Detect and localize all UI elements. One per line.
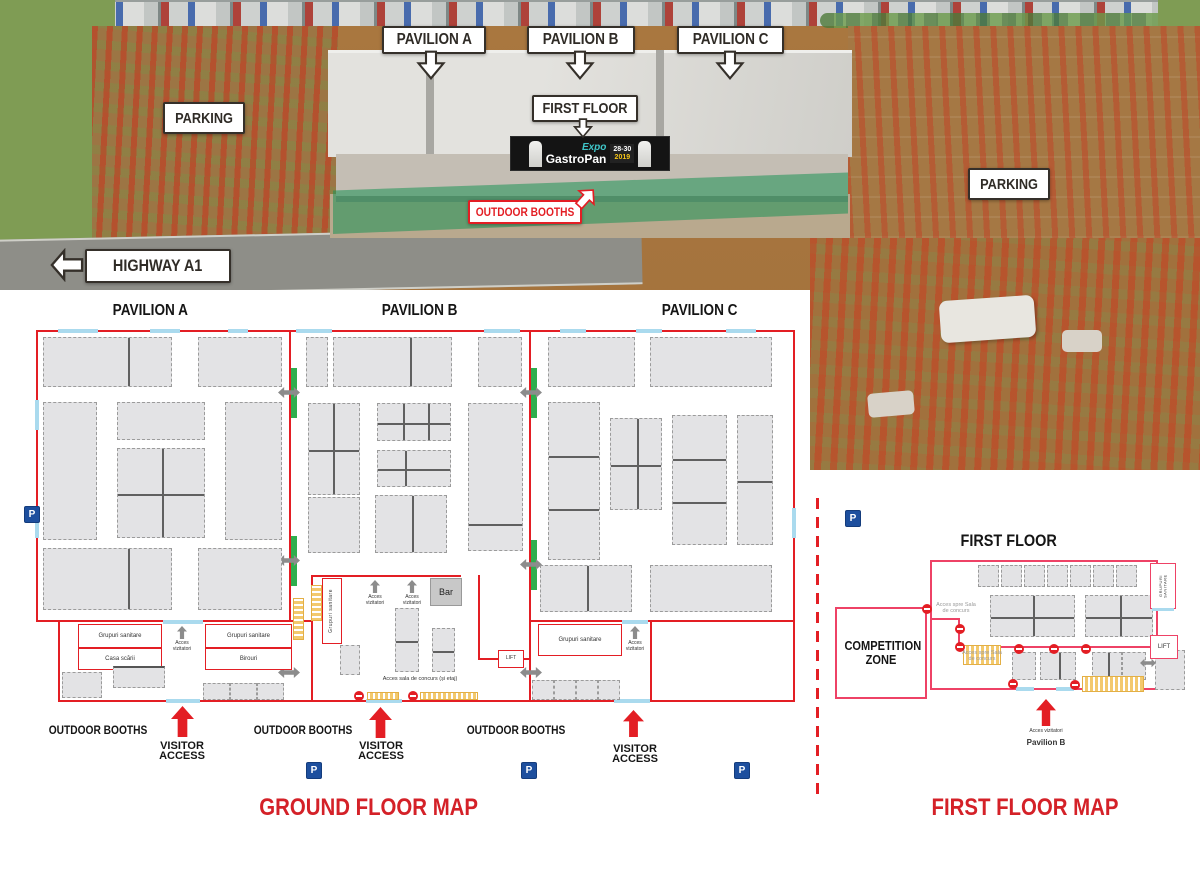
booth [308, 497, 360, 553]
ground-pavilion-b-title: PAVILION B [355, 302, 485, 320]
chef-photo-right [638, 141, 651, 167]
stairs [311, 585, 322, 621]
door-opening [726, 329, 756, 333]
stairs [367, 692, 399, 700]
parking-icon: P [306, 762, 322, 779]
first-floor-title: FIRST FLOOR [929, 531, 1089, 551]
booth [978, 565, 999, 587]
highway-callout: HIGHWAY A1 [85, 249, 231, 283]
parking-symbol: P [29, 509, 36, 520]
booth-divider [1120, 596, 1122, 636]
wall [36, 330, 38, 622]
stairs [1082, 676, 1144, 692]
room-grupuri-sanitare: Grupuri sanitare [205, 624, 292, 648]
parking-icon: P [24, 506, 40, 523]
banner-dates: 28-30 [613, 146, 631, 154]
pavilion-c-callout-text: PAVILION C [693, 31, 769, 49]
parking-icon: P [845, 510, 861, 527]
wall [478, 575, 480, 660]
booth [43, 402, 97, 540]
booth [340, 645, 360, 675]
no-entry-icon [1070, 680, 1080, 690]
booth [377, 450, 451, 487]
booth [610, 418, 662, 510]
acces-spre-sala-label: Acces spre Sala de concurs [934, 602, 978, 615]
first-floor-title-text: FIRST FLOOR [961, 531, 1057, 551]
door-opening [35, 400, 39, 430]
outdoor-booths-text: OUTDOOR BOOTHS [254, 723, 353, 737]
booth [548, 402, 600, 560]
outdoor-booths-text: OUTDOOR BOOTHS [467, 723, 566, 737]
door-opening [484, 329, 520, 333]
booth [203, 683, 230, 700]
booth [1040, 652, 1076, 680]
booth [1093, 565, 1114, 587]
booth-divider [396, 641, 418, 643]
ground-pavilion-c-title: PAVILION C [635, 302, 765, 320]
chef-photo-left [529, 141, 542, 167]
booth [308, 403, 360, 495]
door-opening [150, 329, 180, 333]
booth [1085, 595, 1153, 637]
stairs [293, 598, 304, 640]
no-entry-icon [1081, 644, 1091, 654]
parking-right-callout: PARKING [968, 168, 1050, 200]
booth-divider [162, 449, 164, 537]
room-lift: LIFT [498, 650, 524, 668]
booth [468, 403, 523, 551]
booth [1012, 652, 1036, 680]
exhibit-field-right [848, 26, 1200, 238]
ground-pavilion-b-text: PAVILION B [382, 302, 458, 320]
wall [650, 620, 652, 702]
door-opening [622, 620, 648, 624]
booth [1024, 565, 1045, 587]
acces-vizitatori-text: Acces vizitatori [403, 594, 421, 606]
no-entry-icon [922, 604, 932, 614]
parking-left-text: PARKING [175, 110, 233, 127]
room-label: Birouri [240, 656, 257, 663]
booth-divider [637, 419, 639, 509]
parking-left-callout: PARKING [163, 102, 245, 134]
booth-divider [611, 465, 661, 467]
outdoor-booths-text: OUTDOOR BOOTHS [49, 723, 148, 737]
visitor-access-label: VISITOR ACCESS [612, 744, 658, 765]
booth [1070, 565, 1091, 587]
booth-divider [673, 502, 726, 504]
visitor-access-arrow-icon [1036, 699, 1056, 726]
booth-divider [1033, 596, 1035, 636]
outdoor-booths-label: OUTDOOR BOOTHS [458, 723, 568, 737]
booth [1047, 565, 1068, 587]
first-floor-map-title-text: FIRST FLOOR MAP [931, 794, 1118, 822]
room-label: Grupuri sanitare [98, 633, 141, 640]
down-arrow-icon [416, 50, 446, 80]
booth [432, 628, 455, 672]
tent-small-1 [1062, 330, 1102, 352]
no-entry-icon [408, 691, 418, 701]
booth [198, 337, 282, 387]
wall [529, 620, 795, 622]
room-label: Grupuri sanitare [227, 633, 270, 640]
booth-divider [128, 549, 130, 609]
booth [198, 548, 282, 610]
outdoor-booths-callout-text: OUTDOOR BOOTHS [476, 205, 575, 219]
banner-brand-expo: Expo [546, 143, 607, 153]
ground-pavilion-a-text: PAVILION A [112, 302, 187, 320]
booth [650, 565, 772, 612]
booth-divider [673, 459, 726, 461]
banner-brand-gastropan: GastroPan [546, 153, 607, 165]
acces-vizitatori-text: Acces vizitatori [366, 594, 384, 606]
booth-divider [428, 404, 430, 440]
room-label: LIFT [1158, 644, 1170, 651]
acces-spre-sala-text: Acces spre Sala de concurs [936, 602, 976, 614]
door-opening [1152, 608, 1174, 611]
ground-pavilion-a-title: PAVILION A [85, 302, 215, 320]
booth-divider [1059, 653, 1061, 679]
booth [1001, 565, 1022, 587]
booth-divider [469, 524, 522, 526]
competition-zone: COMPETITION ZONE [835, 607, 927, 699]
door-opening [636, 329, 662, 333]
down-arrow-icon [715, 50, 745, 80]
no-entry-icon [955, 624, 965, 634]
door-opening [560, 329, 586, 333]
room-grupuri-sanitare: Grupuri sanitare [538, 624, 622, 656]
visitor-access-text: VISITOR ACCESS [159, 740, 205, 762]
highway-text: HIGHWAY A1 [113, 256, 202, 276]
booth [478, 337, 522, 387]
booth-divider [587, 566, 589, 611]
booth [230, 683, 257, 700]
acces-vizitatori-label: Acces vizitatori [397, 595, 427, 607]
section-divider [816, 498, 819, 800]
no-entry-icon [1008, 679, 1018, 689]
acces-vizitatori-label: Acces vizitatori [1016, 729, 1076, 735]
parking-symbol: P [526, 765, 533, 776]
tent-large [939, 295, 1037, 344]
booth-divider [378, 469, 450, 471]
acces-vizitatori-text: Acces vizitatori [173, 640, 191, 652]
booth-divider [309, 450, 359, 452]
no-entry-icon [354, 691, 364, 701]
expo-venue-map: Expo GastroPan 28-30 2019 PAVILION A PAV… [0, 0, 1200, 876]
acces-vizitatori-text: Acces vizitatori [626, 640, 644, 652]
room-lift: LIFT [1150, 635, 1178, 659]
room-label: Grupuri sanitare [329, 589, 335, 633]
competition-zone-text: COMPETITION ZONE [844, 639, 917, 668]
booth-divider [991, 617, 1074, 619]
no-entry-icon [1014, 644, 1024, 654]
room-label: Grupuri sanitare [558, 637, 601, 644]
door-opening [1016, 687, 1034, 691]
parking-symbol: P [311, 765, 318, 776]
banner-date-block: 28-30 2019 [610, 144, 634, 163]
room-label: GRUPURI SANITARE [1159, 564, 1168, 608]
ground-pavilion-c-text: PAVILION C [662, 302, 738, 320]
booth-divider [1086, 617, 1152, 619]
acces-sala-concurs-label: Acces sala de concurs (și etaj) [370, 676, 470, 682]
booth [62, 672, 102, 698]
room-grupuri-sanitare: GRUPURI SANITARE [1150, 563, 1176, 609]
booth-divider [433, 651, 454, 653]
pavilion-b-callout-text: PAVILION B [543, 31, 619, 49]
booth-divider [412, 496, 414, 552]
booth [1116, 565, 1137, 587]
room-label: Bar [439, 587, 453, 597]
booth [117, 448, 205, 538]
wall [930, 618, 960, 620]
booth-divider [378, 423, 450, 425]
visitor-access-label: VISITOR ACCESS [358, 741, 404, 762]
booth [377, 403, 451, 441]
parking-icon: P [734, 762, 750, 779]
parking-symbol: P [739, 765, 746, 776]
booth [540, 565, 632, 612]
booth [257, 683, 284, 700]
ground-floor-map-title-text: GROUND FLOOR MAP [259, 794, 478, 822]
room-label: LIFT [506, 656, 516, 662]
booth [598, 680, 620, 700]
booth [43, 337, 172, 387]
outdoor-booths-label: OUTDOOR BOOTHS [38, 723, 158, 737]
pavilion-b-access-text: Pavilion B [1027, 738, 1066, 747]
acces-vizitatori-label: Acces vizitatori [620, 641, 650, 653]
door-opening [58, 329, 98, 333]
wall [793, 620, 795, 702]
banner-year: 2019 [613, 154, 631, 162]
room-grupuri-sanitare: Grupuri sanitare [78, 624, 162, 648]
outdoor-booths-callout: OUTDOOR BOOTHS [468, 200, 582, 224]
door-opening [228, 329, 248, 333]
booth [672, 415, 727, 545]
booth [990, 595, 1075, 637]
room-grupuri-sanitare: Grupuri sanitare [322, 578, 342, 644]
booth [548, 337, 635, 387]
wall [311, 575, 461, 577]
booth [117, 402, 205, 440]
down-arrow-icon [565, 50, 595, 80]
room-bar: Bar [430, 578, 462, 606]
down-arrow-icon [572, 118, 594, 138]
door-opening [166, 699, 200, 703]
door-opening [296, 329, 332, 333]
acces-vizitatori-label: Acces vizitatori [360, 595, 390, 607]
booth-divider [738, 481, 772, 483]
room-label: Casa scării [105, 656, 135, 663]
door-opening [163, 620, 203, 624]
booth-divider [549, 509, 599, 511]
pavilion-b-access-label: Pavilion B [1016, 738, 1076, 747]
visitor-access-text: VISITOR ACCESS [358, 740, 404, 762]
booth-divider [333, 404, 335, 494]
booth [306, 337, 328, 387]
booth [113, 666, 165, 688]
room-birouri: Birouri [205, 648, 292, 670]
booth [225, 402, 282, 540]
parking-right-text: PARKING [980, 176, 1038, 193]
acces-vizitatori-label: Acces vizitatori [167, 641, 197, 653]
booth [43, 548, 172, 610]
left-arrow-icon [50, 248, 84, 282]
booth [650, 337, 772, 387]
parking-icon: P [521, 762, 537, 779]
stairs [420, 692, 478, 700]
booth [532, 680, 554, 700]
booth [375, 495, 447, 553]
pavilion-a-callout-text: PAVILION A [396, 31, 471, 49]
wall [58, 620, 60, 702]
first-floor-map-title: FIRST FLOOR MAP [915, 794, 1115, 822]
booth [554, 680, 576, 700]
door-opening [792, 508, 796, 538]
parking-symbol: P [850, 513, 857, 524]
booth-divider [549, 456, 599, 458]
tent-small-2 [867, 390, 915, 418]
acces-sala-concurs-text: Acces sala de concurs (și etaj) [383, 676, 458, 682]
acces-spre-sala-label: Acces spre Sala de concurs [960, 650, 1004, 663]
outdoor-booths-label: OUTDOOR BOOTHS [245, 723, 353, 737]
booth [737, 415, 773, 545]
booth-divider [403, 404, 405, 440]
booth [576, 680, 598, 700]
wall [793, 330, 795, 622]
acces-vizitatori-text: Acces vizitatori [1029, 728, 1062, 734]
booth-divider [410, 338, 412, 386]
first-floor-callout-text: FIRST FLOOR [543, 100, 628, 117]
visitor-access-label: VISITOR ACCESS [159, 741, 205, 762]
gastropan-banner: Expo GastroPan 28-30 2019 [510, 136, 670, 171]
visitor-access-text: VISITOR ACCESS [612, 743, 658, 765]
exhibit-field-bottom-right [810, 238, 1200, 470]
acces-spre-sala-text: Acces spre Sala de concurs [962, 650, 1002, 662]
booth [395, 608, 419, 672]
booth-divider [128, 338, 130, 386]
booth-divider [118, 494, 204, 496]
booth [333, 337, 452, 387]
ground-floor-map-title: GROUND FLOOR MAP [240, 794, 445, 822]
no-entry-icon [1049, 644, 1059, 654]
